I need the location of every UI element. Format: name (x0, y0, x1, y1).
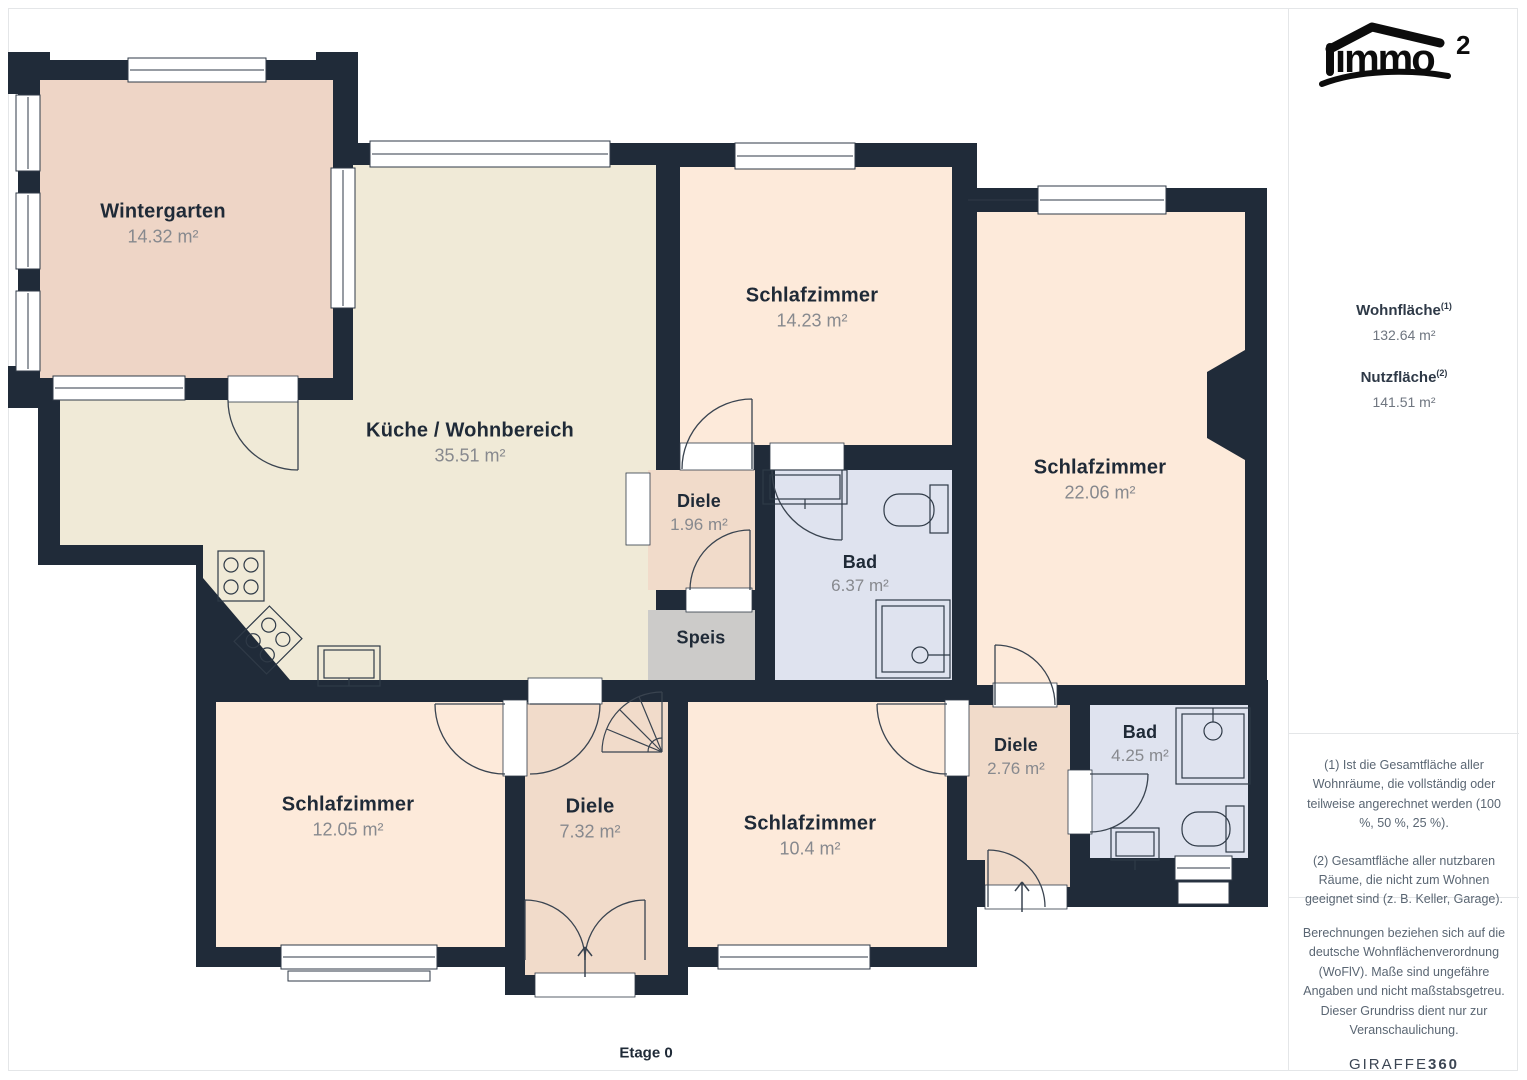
sidebar-footnotes-section: (1) Ist die Gesamtfläche aller Wohnräume… (1289, 733, 1519, 898)
giraffe360-brand: GIRAFFE360 (1289, 1056, 1519, 1073)
living-area-label: Wohnfläche(1) (1289, 301, 1519, 319)
disclaimer-text: Berechnungen beziehen sich auf die deuts… (1289, 898, 1519, 1040)
footnote-1: (1) Ist die Gesamtfläche aller Wohnräume… (1289, 756, 1519, 834)
room-shape-schlafzimmer-bm (688, 702, 947, 947)
sidebar-summary-section: immo 2 Wohnfläche(1) 132.64 m² Nutzfläch… (1289, 8, 1519, 733)
room-shape-diele-mid (648, 470, 755, 590)
room-shape-diele-7 (525, 702, 668, 975)
window (128, 58, 266, 82)
room-shape-diele-2 (967, 705, 1070, 887)
usable-area-label: Nutzfläche(2) (1289, 368, 1519, 386)
living-area-value: 132.64 m² (1289, 327, 1519, 343)
room-shape-speis (648, 610, 755, 680)
usable-area-value: 141.51 m² (1289, 394, 1519, 410)
floor-level-label: Etage 0 (619, 1045, 672, 1062)
window (16, 193, 40, 269)
window (735, 143, 855, 169)
logo-superscript: 2 (1456, 30, 1470, 60)
window (370, 141, 610, 167)
immo-logo: immo 2 (1318, 22, 1490, 93)
room-shape-wintergarten (40, 80, 333, 378)
room-shape-schlafzimmer-top (680, 167, 952, 445)
room-shape-bad-br (1090, 705, 1248, 858)
window (331, 168, 355, 308)
window (16, 291, 40, 371)
window (718, 945, 870, 969)
room-shape-schlafzimmer-bl (216, 702, 505, 947)
immo-logo-graphic: immo 2 (1318, 22, 1490, 88)
window (281, 945, 437, 981)
info-sidebar: immo 2 Wohnfläche(1) 132.64 m² Nutzfläch… (1288, 8, 1519, 1071)
sidebar-disclaimer-section: Berechnungen beziehen sich auf die deuts… (1289, 898, 1519, 1071)
room-shape-schlafzimmer-right (977, 212, 1245, 685)
living-area-block: Wohnfläche(1) 132.64 m² (1289, 301, 1519, 343)
window (16, 95, 40, 171)
window (1175, 856, 1232, 904)
usable-area-block: Nutzfläche(2) 141.51 m² (1289, 368, 1519, 410)
window (53, 376, 185, 400)
